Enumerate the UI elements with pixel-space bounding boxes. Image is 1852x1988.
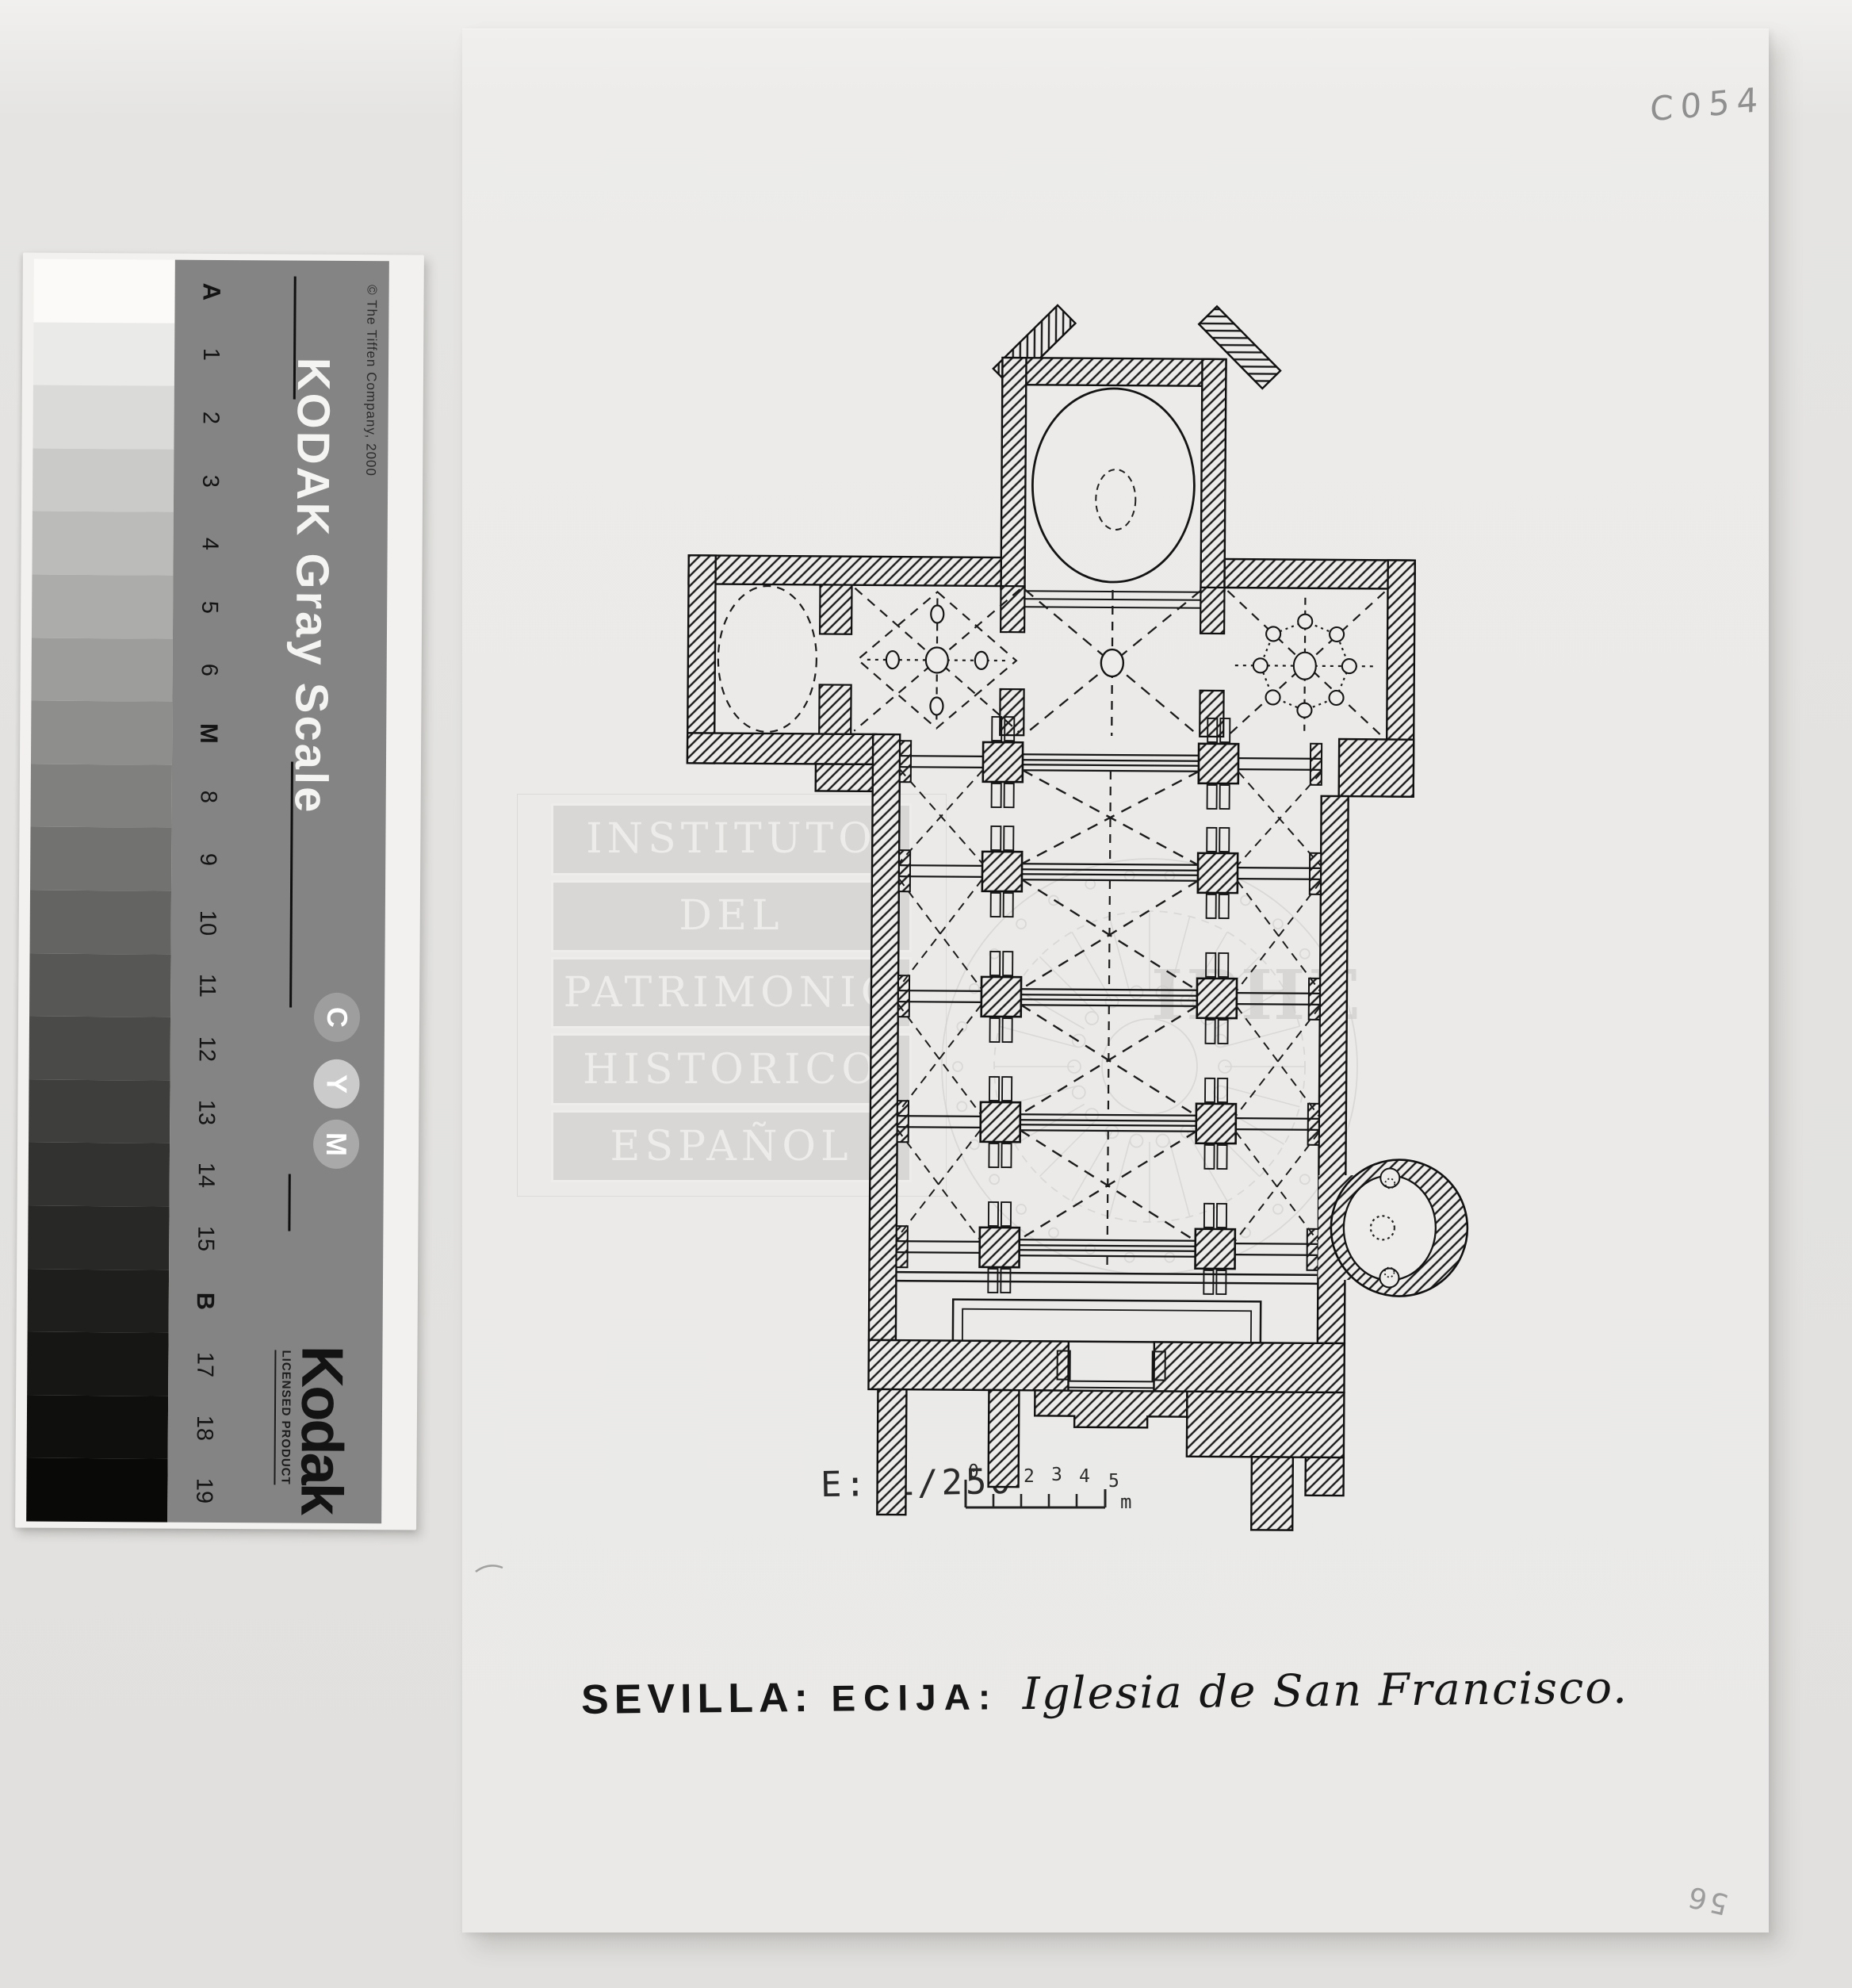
watermark-line: INSTITUTO [551,803,912,875]
card-step-label-6: 6 [197,653,221,688]
badge-M: M [313,1120,359,1169]
gray-patch-4 [32,511,173,576]
watermark-line: PATRIMONIO [551,957,912,1029]
gray-patch-5 [32,575,173,639]
archival-photo-scene: A123456M89101112131415B171819 KODAK Gray… [0,0,1852,1988]
gray-patch-19 [26,1458,167,1523]
gray-scale-label-card: A123456M89101112131415B171819 KODAK Gray… [167,260,389,1524]
watermark-line: DEL [551,880,912,952]
card-rule-bottom [288,1174,290,1231]
scale-ratio-label: E: 1/250 [821,1461,1015,1505]
badge-C: C [314,993,360,1042]
card-step-label-2: 2 [199,400,223,435]
pencil-archive-code: C054 [1650,80,1766,129]
card-step-label-1: 1 [199,337,223,372]
gray-patch-14 [29,1143,170,1207]
kodak-gray-scale-title: KODAK Gray Scale [285,358,341,815]
scale-tick-4: 4 [1079,1466,1090,1487]
gray-patch-B [28,1269,169,1333]
gray-patch-1 [33,322,174,386]
card-step-label-9: 9 [196,842,220,877]
kodak-logo: Kodak [288,1346,356,1514]
gray-patch-9 [30,827,171,891]
tracing-paper-sheet: INSTITUTO DEL PATRIMONIO HISTORICO ESPAÑ… [462,29,1769,1932]
iphe-acronym-watermark: IPHE [1151,956,1364,1036]
scale-tick-2: 2 [1024,1466,1035,1487]
card-step-label-8: 8 [197,779,220,814]
licensed-product-label: LICENSED PRODUCT [274,1350,293,1484]
gray-patch-17 [27,1332,168,1396]
watermark-line: ESPAÑOL [551,1110,912,1182]
card-step-label-M: M [197,716,220,751]
card-step-label-14: 14 [194,1158,218,1193]
gray-patch-18 [27,1395,168,1459]
card-step-label-12: 12 [195,1032,219,1067]
card-step-label-B: B [193,1284,217,1319]
scale-tick-0: 0 [968,1461,979,1482]
card-step-label-11: 11 [195,968,219,1003]
card-step-label-13: 13 [194,1094,218,1129]
gray-patch-2 [33,385,174,450]
gray-patch-6 [31,638,172,702]
caption-title: Iglesia de San Francisco. [1022,1662,1628,1720]
gray-patch-10 [30,890,171,954]
tiffen-copyright: © The Tiffen Company, 2000 [362,285,379,477]
iphe-watermark-stamp: INSTITUTO DEL PATRIMONIO HISTORICO ESPAÑ… [551,803,912,1182]
scale-unit-label: m [1120,1491,1131,1513]
card-step-label-4: 4 [198,527,222,561]
gray-patch-12 [29,1017,170,1081]
gray-patch-8 [30,764,171,828]
card-step-label-17: 17 [193,1347,216,1382]
caption-province: SEVILLA: [581,1675,813,1723]
card-step-label-A: A [199,274,223,309]
gray-patch-A [33,259,174,324]
gray-patch-11 [29,953,170,1017]
gray-patch-column [26,259,175,1523]
gray-patch-M [31,701,172,765]
scale-tick-1: 1 [996,1469,1007,1490]
card-step-label-15: 15 [193,1221,217,1256]
badge-letter: Y [320,1074,353,1094]
card-step-label-19: 19 [192,1473,216,1508]
caption-town: ECIJA: [831,1676,998,1718]
kodak-gray-scale-strip: A123456M89101112131415B171819 KODAK Gray… [15,252,424,1530]
card-step-label-5: 5 [197,590,221,625]
badge-letter: M [320,1132,353,1156]
card-step-label-3: 3 [198,463,222,498]
gray-patch-3 [33,448,174,512]
card-step-label-18: 18 [193,1410,216,1445]
scale-tick-5: 5 [1108,1471,1119,1492]
pencil-reverse-number: 56 [1682,1879,1731,1920]
gray-patch-13 [29,1079,170,1143]
watermark-line: HISTORICO [551,1033,912,1105]
scale-tick-3: 3 [1051,1465,1062,1485]
badge-Y: Y [313,1059,359,1109]
handwritten-caption: SEVILLA: ECIJA: Iglesia de San Francisco… [581,1662,1628,1725]
badge-letter: C [320,1007,354,1028]
card-step-label-10: 10 [196,906,220,940]
gray-patch-15 [28,1205,169,1270]
